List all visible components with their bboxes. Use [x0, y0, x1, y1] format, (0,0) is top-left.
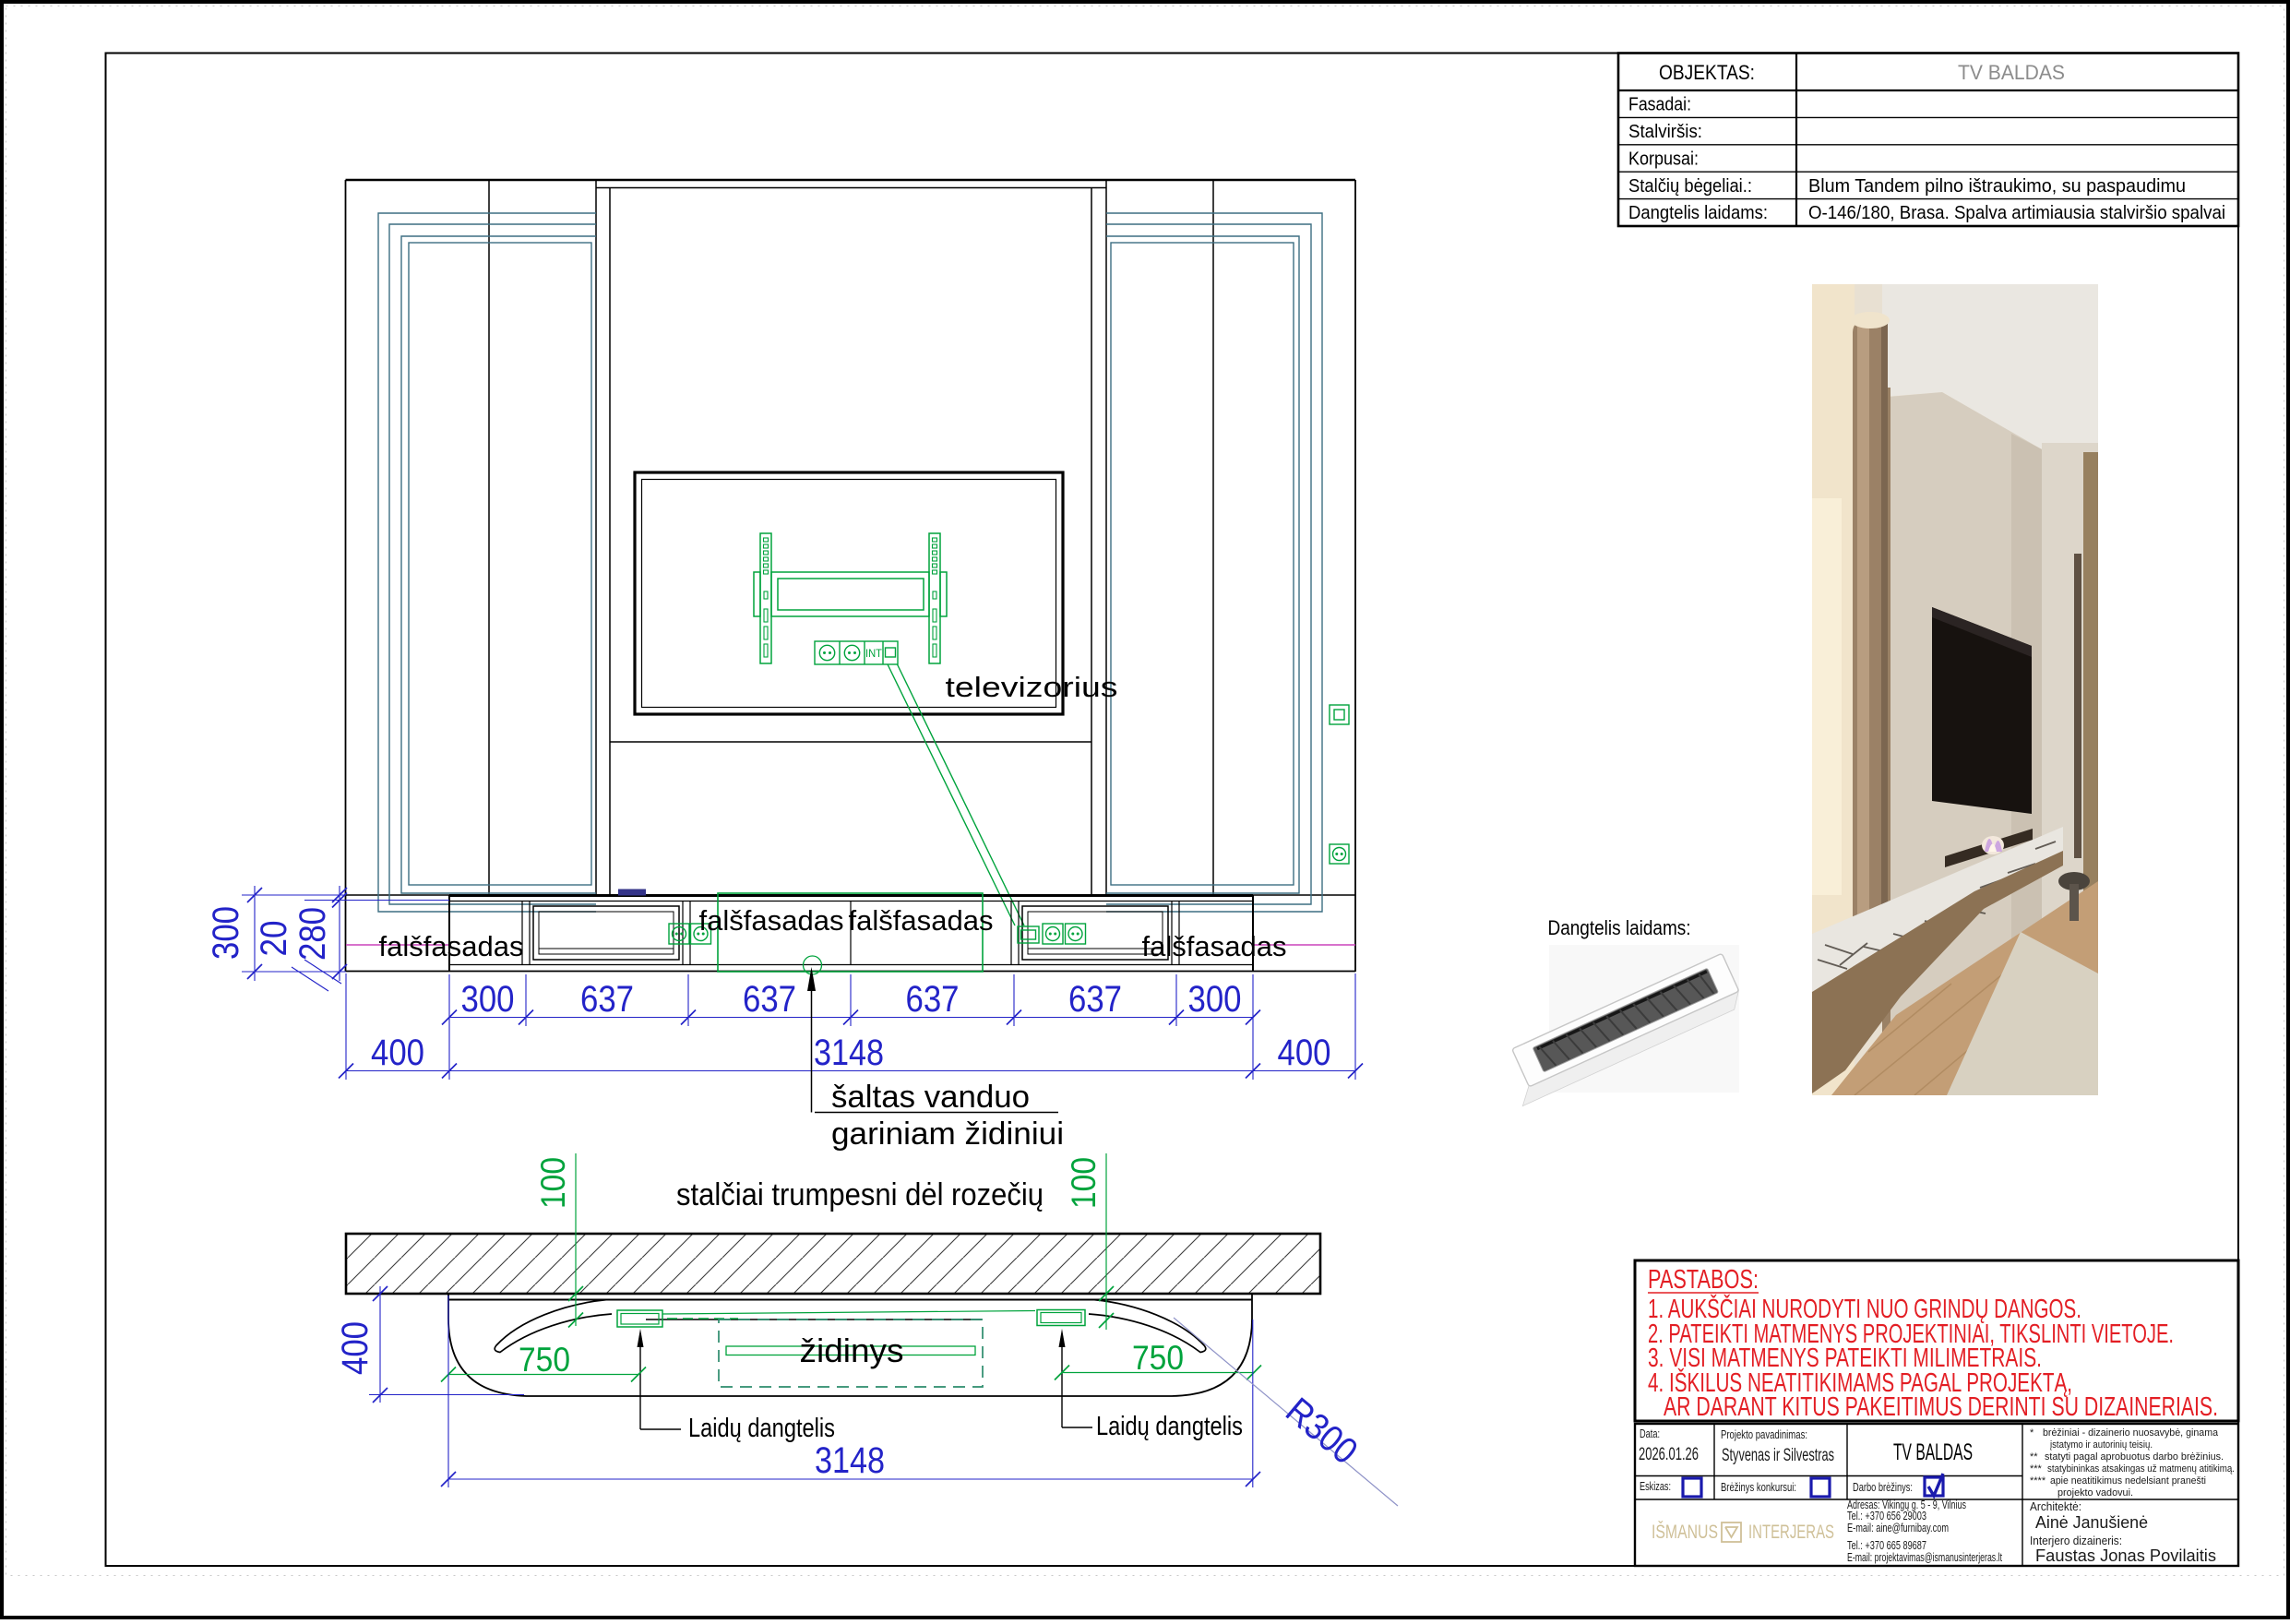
svg-text:300: 300 — [206, 906, 246, 960]
svg-text:3148: 3148 — [814, 1033, 884, 1073]
svg-text:falšfasadas: falšfasadas — [1142, 930, 1287, 962]
svg-text:Dangtelis laidams:: Dangtelis laidams: — [1628, 203, 1768, 223]
svg-text:Dangtelis laidams:: Dangtelis laidams: — [1548, 916, 1691, 939]
svg-text:Darbo brėžinys:: Darbo brėžinys: — [1853, 1480, 1913, 1494]
svg-text:PASTABOS:: PASTABOS: — [1648, 1265, 1759, 1295]
svg-text:Laidų dangtelis: Laidų dangtelis — [688, 1414, 835, 1443]
svg-text:E-mail: projektavimas@ismanusi: E-mail: projektavimas@ismanusinterjeras.… — [1847, 1550, 2002, 1564]
svg-text:įstatymo ir autorinių teisių.: įstatymo ir autorinių teisių. — [2050, 1439, 2153, 1451]
svg-text:Laidų dangtelis: Laidų dangtelis — [1096, 1412, 1243, 1441]
svg-text:400: 400 — [1278, 1033, 1331, 1073]
svg-text:Interjero dizaineris:: Interjero dizaineris: — [2030, 1534, 2122, 1547]
svg-text:stalčiai trumpesni dėl rozečių: stalčiai trumpesni dėl rozečių — [676, 1177, 1044, 1212]
svg-text:Stalviršis:: Stalviršis: — [1628, 122, 1702, 142]
svg-text:televizorius: televizorius — [946, 671, 1118, 703]
svg-text:637: 637 — [580, 979, 634, 1020]
svg-text:statybininkas atsakingas už ma: statybininkas atsakingas už matmenų atit… — [2047, 1463, 2235, 1475]
svg-text:statyti pagal aprobuotus darbo: statyti pagal aprobuotus darbo brėžinius… — [2045, 1451, 2224, 1463]
svg-text:****: **** — [2030, 1475, 2046, 1487]
svg-text:637: 637 — [743, 979, 796, 1020]
svg-text:Architektė:: Architektė: — [2030, 1499, 2081, 1513]
svg-text:280: 280 — [292, 907, 333, 961]
svg-text:Styvenas ir Silvestras: Styvenas ir Silvestras — [1722, 1446, 1834, 1465]
svg-text:E-mail: aine@furnibay.com: E-mail: aine@furnibay.com — [1847, 1521, 1949, 1534]
svg-text:750: 750 — [1132, 1339, 1184, 1377]
svg-text:OBJEKTAS:: OBJEKTAS: — [1659, 61, 1755, 84]
svg-text:*: * — [2030, 1427, 2034, 1439]
svg-text:brėžiniai - dizainerio nuosavy: brėžiniai - dizainerio nuosavybė, ginama — [2043, 1427, 2219, 1439]
svg-text:400: 400 — [371, 1033, 424, 1073]
svg-text:INTERJERAS: INTERJERAS — [1748, 1522, 1834, 1543]
svg-text:TV BALDAS: TV BALDAS — [1958, 61, 2065, 84]
svg-text:apie neatitikimus nedelsiant p: apie neatitikimus nedelsiant pranešti — [2050, 1475, 2206, 1487]
svg-text:IŠMANUS: IŠMANUS — [1652, 1522, 1718, 1543]
svg-text:300: 300 — [461, 979, 515, 1020]
svg-text:2026.01.26: 2026.01.26 — [1639, 1445, 1699, 1464]
svg-text:Stalčių bėgeliai.:: Stalčių bėgeliai.: — [1628, 176, 1752, 197]
svg-text:šaltas vanduo: šaltas vanduo — [831, 1080, 1030, 1115]
svg-text:**: ** — [2030, 1451, 2038, 1463]
svg-text:3148: 3148 — [815, 1440, 885, 1481]
svg-text:gariniam židiniui: gariniam židiniui — [831, 1116, 1064, 1152]
svg-text:projekto vadovui.: projekto vadovui. — [2057, 1487, 2133, 1499]
svg-text:Ainė Janušienė: Ainė Janušienė — [2035, 1513, 2148, 1532]
svg-text:Korpusai:: Korpusai: — [1628, 149, 1699, 169]
svg-text:Faustas Jonas Povilaitis: Faustas Jonas Povilaitis — [2035, 1546, 2216, 1565]
svg-text:300: 300 — [1188, 979, 1242, 1020]
svg-text:falšfasadas: falšfasadas — [699, 904, 844, 937]
svg-text:100: 100 — [534, 1157, 572, 1209]
svg-text:INT: INT — [865, 649, 882, 660]
svg-text:Blum Tandem pilno ištraukimo,: Blum Tandem pilno ištraukimo, su paspaud… — [1808, 176, 2186, 197]
svg-text:637: 637 — [906, 979, 960, 1020]
svg-text:750: 750 — [519, 1341, 570, 1379]
svg-text:Fasadai:: Fasadai: — [1628, 95, 1691, 115]
svg-text:Eskizas:: Eskizas: — [1640, 1479, 1671, 1493]
svg-text:637: 637 — [1068, 979, 1122, 1020]
svg-text:***: *** — [2030, 1463, 2043, 1475]
svg-text:O-146/180, Brasa. Spalva artim: O-146/180, Brasa. Spalva artimiausia sta… — [1808, 203, 2225, 223]
svg-text:Projekto pavadinimas:: Projekto pavadinimas: — [1721, 1427, 1807, 1441]
svg-text:100: 100 — [1065, 1157, 1103, 1209]
svg-text:AR DARANT KITUS PAKEITIMUS DER: AR DARANT KITUS PAKEITIMUS DERINTI SU DI… — [1664, 1392, 2218, 1422]
svg-text:falšfasadas: falšfasadas — [849, 904, 994, 937]
svg-text:20: 20 — [254, 921, 294, 957]
svg-text:židinys: židinys — [800, 1331, 904, 1369]
svg-text:TV BALDAS: TV BALDAS — [1893, 1439, 1973, 1465]
svg-text:falšfasadas: falšfasadas — [379, 930, 524, 962]
svg-text:400: 400 — [335, 1321, 376, 1375]
svg-text:Data:: Data: — [1640, 1427, 1660, 1440]
svg-text:Brėžinys konkursui:: Brėžinys konkursui: — [1721, 1480, 1796, 1494]
